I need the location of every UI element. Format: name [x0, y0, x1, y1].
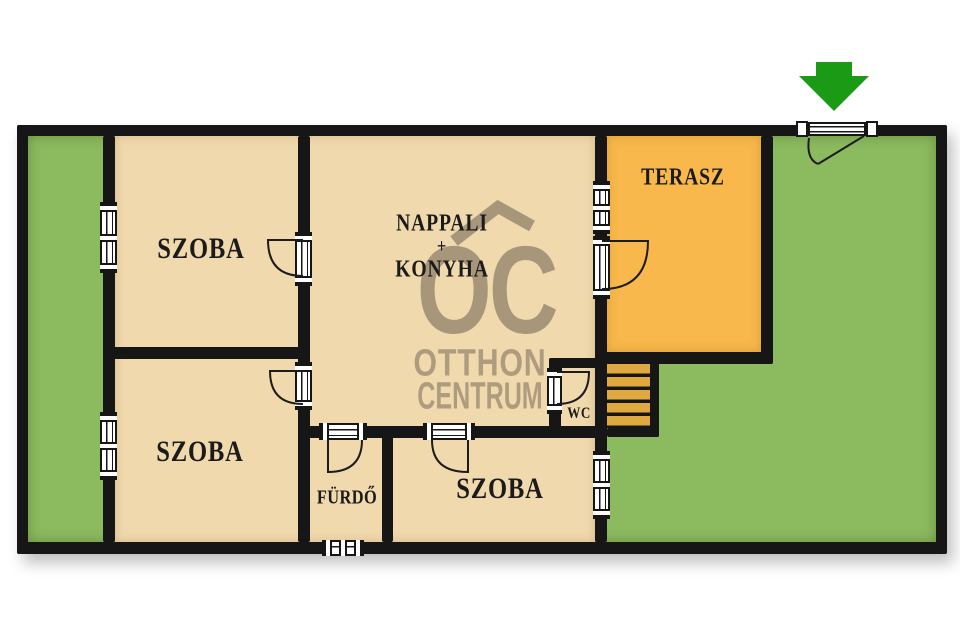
door-pane: [433, 427, 465, 436]
door-symbol-szoba-bottom-left: [295, 362, 312, 410]
window-pane: [104, 242, 113, 264]
door-cap: [357, 423, 365, 440]
window-cap: [100, 263, 117, 271]
door-pane: [299, 372, 308, 400]
window-cap: [593, 204, 610, 212]
window-symbol-furdo-bottom: [322, 540, 364, 556]
window-pane: [597, 191, 606, 204]
wall-rooms-nappali: [298, 136, 310, 542]
window-cap: [339, 540, 347, 556]
floorplan-canvas: OC OTTHON CENTRUM SZOBA SZOBA SZOBA NAPP…: [0, 0, 960, 618]
room-label-szoba-top-left: SZOBA: [157, 232, 245, 266]
window-cap: [100, 470, 117, 478]
gate-post: [796, 121, 808, 137]
window-symbol-nappali-terasz: [593, 181, 610, 234]
room-label-szoba-bottom-left: SZOBA: [156, 435, 244, 469]
room-label-szoba-bottom-center: SZOBA: [456, 472, 544, 506]
door-cap: [593, 289, 610, 297]
gate-leaf: [808, 122, 866, 136]
stairs-wall-bottom: [607, 428, 659, 437]
nappali-plus: +: [395, 236, 488, 259]
nappali-line: NAPPALI: [395, 213, 488, 236]
window-pane: [104, 212, 113, 234]
window-cap: [593, 224, 610, 232]
window-pane: [597, 212, 606, 225]
plot-wall-bottom: [17, 542, 947, 554]
door-pane: [329, 427, 357, 436]
door-cap: [295, 276, 312, 284]
window-symbol-szoba-bottom-center: [593, 451, 610, 519]
watermark-brand-line2: CENTRUM: [417, 376, 542, 419]
door-symbol-szoba-top-left: [295, 232, 312, 286]
door-symbol-szoba-bottom-center: [423, 423, 475, 440]
window-cap: [593, 481, 610, 489]
window-cap: [593, 509, 610, 517]
wall-furdo-szoba: [382, 426, 393, 542]
door-cap: [547, 370, 562, 378]
room-label-furdo: FÜRDŐ: [317, 487, 377, 510]
plot-wall-right: [936, 125, 947, 554]
window-cap: [100, 234, 117, 242]
room-label-terasz: TERASZ: [641, 165, 725, 192]
door-cap: [465, 423, 473, 440]
window-pane: [104, 450, 113, 470]
plot-wall-left: [17, 125, 28, 554]
window-cap: [100, 204, 117, 212]
gate-post: [866, 121, 878, 137]
door-symbol-wc: [547, 368, 562, 414]
door-cap: [321, 423, 329, 440]
door-pane: [597, 246, 606, 289]
house-wall-left: [103, 136, 115, 542]
room-label-wc: WC: [567, 405, 590, 423]
window-symbol-szoba-bottom-left: [100, 412, 117, 480]
door-pane: [551, 378, 558, 404]
door-cap: [547, 404, 562, 412]
window-cap: [324, 540, 332, 556]
window-symbol-szoba-top-left: [100, 202, 117, 273]
door-cap: [295, 364, 312, 372]
konyha-line: KONYHA: [395, 259, 488, 282]
door-cap: [425, 423, 433, 440]
window-cap: [593, 183, 610, 191]
entrance-arrow-icon: [799, 62, 869, 111]
entrance-gate-symbol: [796, 121, 878, 137]
stairs: [607, 364, 650, 428]
window-cap: [100, 414, 117, 422]
door-pane: [299, 242, 308, 276]
door-cap: [295, 400, 312, 408]
door-cap: [593, 238, 610, 246]
door-symbol-furdo: [319, 423, 367, 440]
wall-between-szoba-rooms: [103, 347, 310, 359]
terrace-wall-right: [761, 136, 773, 364]
window-cap: [100, 442, 117, 450]
window-cap: [354, 540, 362, 556]
window-pane: [597, 489, 606, 509]
window-cap: [593, 453, 610, 461]
window-pane: [332, 544, 339, 552]
door-symbol-terasz: [593, 236, 610, 299]
window-pane: [597, 461, 606, 481]
stairs-wall-right: [650, 358, 659, 437]
window-pane: [347, 544, 354, 552]
terrace-wall-bottom: [595, 352, 773, 364]
window-pane: [104, 422, 113, 442]
room-label-nappali-konyha: NAPPALI + KONYHA: [395, 213, 488, 282]
door-cap: [295, 234, 312, 242]
